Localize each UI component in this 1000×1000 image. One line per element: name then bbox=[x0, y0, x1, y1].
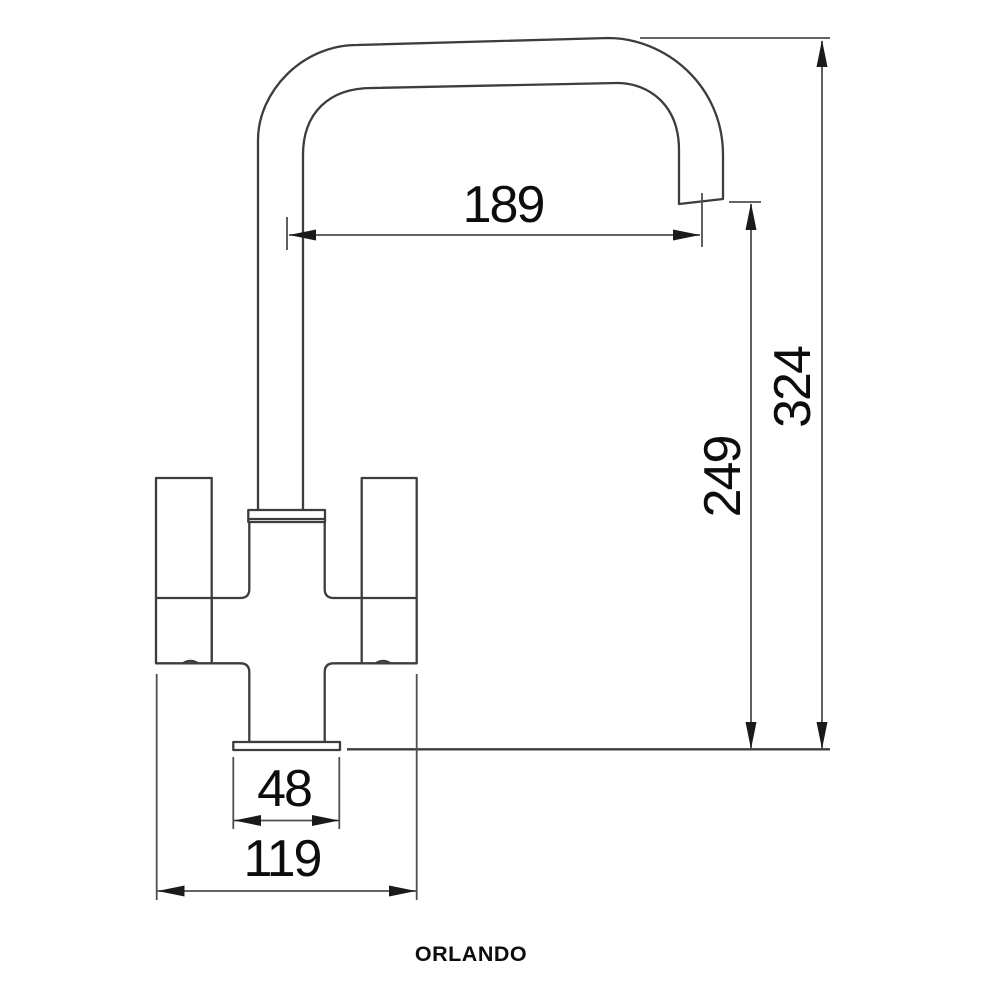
dim-label-overall-height: 324 bbox=[764, 346, 822, 428]
dim-label-spout-reach: 189 bbox=[463, 176, 544, 234]
arrowhead-up bbox=[746, 203, 757, 230]
arrowhead-down bbox=[746, 722, 757, 749]
faucet-drawing bbox=[156, 38, 830, 750]
handle-left bbox=[156, 478, 212, 663]
dim-label-spout-outlet-height: 249 bbox=[694, 437, 752, 518]
dim-label-base-width: 48 bbox=[257, 760, 311, 818]
product-name-label: ORLANDO bbox=[415, 942, 527, 966]
dimension-base-width: 48 bbox=[233, 757, 339, 829]
dimension-spout-outlet-height: 249 bbox=[694, 202, 761, 749]
handle-right-body bbox=[362, 478, 417, 663]
body-cross-outline bbox=[212, 522, 363, 742]
dimension-overall-height: 324 bbox=[640, 38, 830, 749]
arrowhead-right bbox=[389, 886, 416, 897]
dimension-spout-reach: 189 bbox=[287, 176, 702, 250]
spout-outline bbox=[258, 38, 723, 512]
base-plate bbox=[233, 742, 340, 750]
arrowhead-right bbox=[312, 815, 339, 826]
handle-right bbox=[362, 478, 417, 663]
arrowhead-up bbox=[817, 40, 828, 67]
spout-collar bbox=[248, 510, 325, 522]
arrowhead-down bbox=[817, 722, 828, 749]
tap-dimension-diagram: 189 324 249 48 bbox=[0, 0, 1000, 1000]
arrowhead-left bbox=[158, 886, 185, 897]
arrowhead-right bbox=[673, 230, 700, 241]
dim-label-body-width: 119 bbox=[244, 830, 321, 888]
technical-drawing-canvas: 189 324 249 48 bbox=[0, 0, 1000, 1000]
handle-left-body bbox=[156, 478, 212, 663]
